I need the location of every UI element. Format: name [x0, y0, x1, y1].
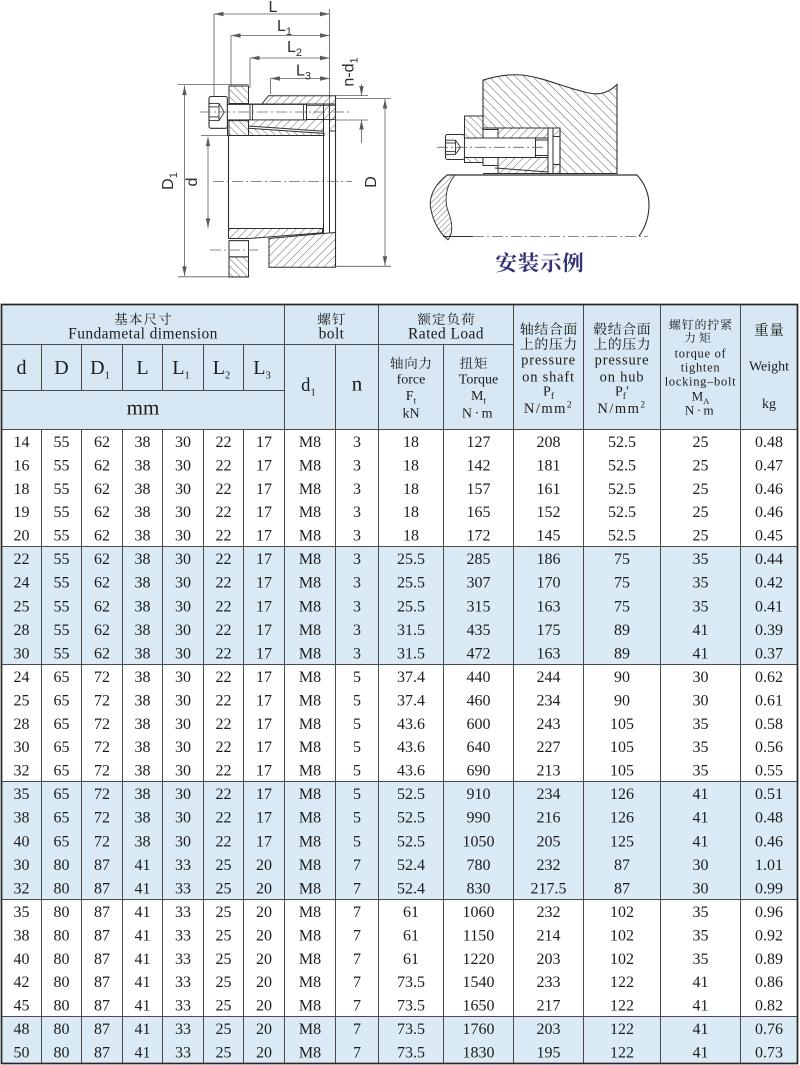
- svg-text:243: 243: [537, 716, 561, 733]
- svg-text:0.76: 0.76: [755, 1021, 783, 1038]
- svg-text:33: 33: [175, 927, 191, 944]
- svg-text:locking–bolt: locking–bolt: [665, 375, 737, 389]
- svg-text:0.92: 0.92: [755, 927, 783, 944]
- svg-text:55: 55: [54, 622, 70, 639]
- svg-text:22: 22: [216, 810, 232, 827]
- svg-text:172: 172: [467, 528, 491, 545]
- svg-text:0.48: 0.48: [755, 810, 783, 827]
- svg-text:38: 38: [135, 810, 151, 827]
- svg-text:0.96: 0.96: [755, 904, 783, 921]
- svg-text:214: 214: [537, 927, 561, 944]
- svg-text:41: 41: [693, 974, 709, 991]
- svg-text:37.4: 37.4: [397, 692, 425, 709]
- svg-text:7: 7: [353, 1021, 361, 1038]
- svg-text:80: 80: [54, 881, 70, 898]
- svg-text:22: 22: [14, 551, 30, 568]
- svg-text:3: 3: [353, 457, 361, 474]
- svg-text:40: 40: [14, 833, 30, 850]
- svg-text:90: 90: [614, 669, 630, 686]
- svg-text:435: 435: [467, 622, 491, 639]
- svg-text:30: 30: [693, 857, 709, 874]
- svg-text:30: 30: [693, 881, 709, 898]
- svg-text:3: 3: [353, 434, 361, 451]
- svg-text:234: 234: [537, 786, 561, 803]
- svg-text:35: 35: [693, 716, 709, 733]
- svg-text:830: 830: [467, 881, 491, 898]
- svg-text:pressure: pressure: [521, 353, 576, 369]
- svg-text:N/mm2: N/mm2: [597, 401, 646, 418]
- svg-text:80: 80: [54, 998, 70, 1015]
- svg-text:0.46: 0.46: [755, 833, 783, 850]
- svg-text:M8: M8: [299, 598, 321, 615]
- svg-text:41: 41: [693, 998, 709, 1015]
- svg-text:20: 20: [256, 1021, 272, 1038]
- svg-text:25: 25: [693, 457, 709, 474]
- svg-text:72: 72: [94, 669, 110, 686]
- svg-text:M8: M8: [299, 763, 321, 780]
- svg-text:3: 3: [353, 551, 361, 568]
- svg-text:43.6: 43.6: [397, 716, 425, 733]
- svg-text:33: 33: [175, 881, 191, 898]
- svg-text:1830: 1830: [463, 1045, 495, 1062]
- svg-text:87: 87: [94, 857, 110, 874]
- svg-text:5: 5: [353, 716, 361, 733]
- svg-text:M8: M8: [299, 857, 321, 874]
- svg-text:25: 25: [216, 857, 232, 874]
- svg-text:33: 33: [175, 1045, 191, 1062]
- svg-text:17: 17: [256, 504, 272, 521]
- svg-text:227: 227: [537, 739, 561, 756]
- svg-text:157: 157: [467, 481, 491, 498]
- svg-text:55: 55: [54, 575, 70, 592]
- svg-text:d: d: [184, 178, 201, 187]
- svg-text:0.55: 0.55: [755, 763, 783, 780]
- svg-text:0.45: 0.45: [755, 528, 783, 545]
- svg-text:41: 41: [693, 1045, 709, 1062]
- svg-text:30: 30: [175, 669, 191, 686]
- svg-text:22: 22: [216, 457, 232, 474]
- svg-text:3: 3: [353, 646, 361, 663]
- svg-text:18: 18: [403, 504, 419, 521]
- svg-text:3: 3: [353, 622, 361, 639]
- svg-text:72: 72: [94, 833, 110, 850]
- svg-text:244: 244: [537, 669, 561, 686]
- svg-text:38: 38: [135, 504, 151, 521]
- svg-text:52.5: 52.5: [397, 786, 425, 803]
- svg-text:M8: M8: [299, 998, 321, 1015]
- svg-text:127: 127: [467, 434, 491, 451]
- svg-text:41: 41: [693, 622, 709, 639]
- svg-text:17: 17: [256, 598, 272, 615]
- svg-text:87: 87: [94, 951, 110, 968]
- svg-text:472: 472: [467, 646, 491, 663]
- svg-text:33: 33: [175, 998, 191, 1015]
- svg-text:315: 315: [467, 598, 491, 615]
- svg-text:D: D: [54, 357, 68, 379]
- svg-text:19: 19: [14, 504, 30, 521]
- svg-text:30: 30: [14, 646, 30, 663]
- svg-text:175: 175: [537, 622, 561, 639]
- svg-text:0.56: 0.56: [755, 739, 783, 756]
- svg-text:41: 41: [135, 974, 151, 991]
- svg-text:75: 75: [614, 575, 630, 592]
- svg-text:43.6: 43.6: [397, 763, 425, 780]
- svg-text:73.5: 73.5: [397, 998, 425, 1015]
- svg-text:32: 32: [14, 881, 30, 898]
- svg-text:7: 7: [353, 998, 361, 1015]
- svg-text:n: n: [352, 372, 363, 396]
- svg-text:55: 55: [54, 504, 70, 521]
- svg-text:62: 62: [94, 575, 110, 592]
- svg-text:30: 30: [175, 763, 191, 780]
- svg-text:122: 122: [610, 998, 634, 1015]
- svg-text:M8: M8: [299, 974, 321, 991]
- svg-text:16: 16: [14, 457, 30, 474]
- svg-text:35: 35: [693, 951, 709, 968]
- svg-text:M8: M8: [299, 622, 321, 639]
- svg-text:48: 48: [14, 1021, 30, 1038]
- svg-text:22: 22: [216, 481, 232, 498]
- svg-text:52.5: 52.5: [608, 528, 636, 545]
- svg-text:20: 20: [256, 857, 272, 874]
- svg-text:52.5: 52.5: [397, 810, 425, 827]
- svg-text:M8: M8: [299, 669, 321, 686]
- svg-text:30: 30: [175, 786, 191, 803]
- svg-text:32: 32: [14, 763, 30, 780]
- svg-text:20: 20: [256, 881, 272, 898]
- svg-text:M8: M8: [299, 951, 321, 968]
- svg-text:640: 640: [467, 739, 491, 756]
- svg-text:22: 22: [216, 551, 232, 568]
- svg-text:75: 75: [614, 551, 630, 568]
- svg-text:5: 5: [353, 739, 361, 756]
- svg-text:142: 142: [467, 457, 491, 474]
- svg-text:17: 17: [256, 551, 272, 568]
- svg-text:37.4: 37.4: [397, 669, 425, 686]
- svg-text:62: 62: [94, 481, 110, 498]
- svg-text:33: 33: [175, 857, 191, 874]
- svg-text:20: 20: [256, 951, 272, 968]
- svg-text:55: 55: [54, 551, 70, 568]
- svg-text:38: 38: [135, 786, 151, 803]
- svg-text:105: 105: [610, 763, 634, 780]
- svg-text:213: 213: [537, 763, 561, 780]
- svg-text:L: L: [136, 357, 148, 379]
- svg-text:460: 460: [467, 692, 491, 709]
- svg-text:30: 30: [693, 669, 709, 686]
- svg-text:7: 7: [353, 974, 361, 991]
- svg-text:N·m: N·m: [685, 403, 716, 418]
- svg-text:72: 72: [94, 739, 110, 756]
- svg-text:25: 25: [693, 504, 709, 521]
- svg-text:17: 17: [256, 575, 272, 592]
- svg-text:38: 38: [135, 551, 151, 568]
- svg-text:0.47: 0.47: [755, 457, 783, 474]
- svg-text:35: 35: [693, 739, 709, 756]
- svg-text:41: 41: [135, 927, 151, 944]
- svg-text:55: 55: [54, 434, 70, 451]
- svg-text:38: 38: [135, 622, 151, 639]
- svg-text:105: 105: [610, 739, 634, 756]
- svg-text:65: 65: [54, 739, 70, 756]
- svg-text:M8: M8: [299, 481, 321, 498]
- svg-text:73.5: 73.5: [397, 1045, 425, 1062]
- svg-text:217.5: 217.5: [531, 881, 567, 898]
- svg-text:87: 87: [94, 927, 110, 944]
- svg-text:Torque: Torque: [459, 373, 498, 388]
- svg-text:5: 5: [353, 786, 361, 803]
- svg-text:22: 22: [216, 622, 232, 639]
- svg-text:7: 7: [353, 927, 361, 944]
- svg-text:61: 61: [403, 951, 419, 968]
- svg-text:87: 87: [94, 904, 110, 921]
- svg-text:30: 30: [175, 716, 191, 733]
- svg-text:170: 170: [537, 575, 561, 592]
- svg-text:M8: M8: [299, 881, 321, 898]
- svg-text:0.44: 0.44: [755, 551, 783, 568]
- svg-text:1150: 1150: [463, 927, 494, 944]
- svg-text:30: 30: [175, 833, 191, 850]
- svg-text:38: 38: [135, 457, 151, 474]
- svg-text:233: 233: [537, 974, 561, 991]
- svg-text:38: 38: [135, 716, 151, 733]
- svg-text:72: 72: [94, 716, 110, 733]
- svg-text:7: 7: [353, 881, 361, 898]
- svg-text:M8: M8: [299, 786, 321, 803]
- svg-text:0.99: 0.99: [755, 881, 783, 898]
- svg-text:M8: M8: [299, 739, 321, 756]
- svg-text:87: 87: [94, 881, 110, 898]
- svg-text:163: 163: [537, 598, 561, 615]
- svg-text:38: 38: [135, 669, 151, 686]
- svg-text:18: 18: [403, 528, 419, 545]
- svg-text:62: 62: [94, 622, 110, 639]
- svg-text:25: 25: [14, 598, 30, 615]
- svg-text:M8: M8: [299, 434, 321, 451]
- svg-text:41: 41: [135, 904, 151, 921]
- svg-text:38: 38: [14, 810, 30, 827]
- svg-text:22: 22: [216, 716, 232, 733]
- svg-text:62: 62: [94, 646, 110, 663]
- svg-text:18: 18: [403, 481, 419, 498]
- svg-text:M8: M8: [299, 904, 321, 921]
- svg-text:102: 102: [610, 904, 634, 921]
- svg-text:0.82: 0.82: [755, 998, 783, 1015]
- svg-text:17: 17: [256, 763, 272, 780]
- svg-text:25: 25: [693, 528, 709, 545]
- svg-text:17: 17: [256, 786, 272, 803]
- svg-text:30: 30: [175, 434, 191, 451]
- svg-text:pressure: pressure: [595, 353, 650, 369]
- svg-text:25: 25: [216, 1021, 232, 1038]
- svg-text:35: 35: [693, 904, 709, 921]
- svg-text:55: 55: [54, 646, 70, 663]
- svg-text:72: 72: [94, 692, 110, 709]
- svg-text:38: 38: [135, 692, 151, 709]
- svg-text:87: 87: [94, 974, 110, 991]
- svg-text:D: D: [363, 176, 380, 188]
- svg-text:M8: M8: [299, 528, 321, 545]
- svg-text:217: 217: [537, 998, 561, 1015]
- svg-text:M8: M8: [299, 646, 321, 663]
- svg-text:52.4: 52.4: [397, 881, 425, 898]
- svg-text:28: 28: [14, 622, 30, 639]
- svg-text:14: 14: [14, 434, 30, 451]
- svg-text:1050: 1050: [463, 833, 495, 850]
- svg-text:80: 80: [54, 904, 70, 921]
- svg-text:87: 87: [614, 881, 630, 898]
- svg-text:87: 87: [94, 1021, 110, 1038]
- svg-text:M8: M8: [299, 575, 321, 592]
- svg-text:3: 3: [353, 598, 361, 615]
- svg-text:990: 990: [467, 810, 491, 827]
- svg-text:M8: M8: [299, 927, 321, 944]
- svg-text:N/mm2: N/mm2: [524, 401, 573, 418]
- svg-text:25: 25: [216, 1045, 232, 1062]
- svg-text:55: 55: [54, 457, 70, 474]
- svg-text:24: 24: [14, 669, 30, 686]
- svg-text:20: 20: [14, 528, 30, 545]
- svg-text:65: 65: [54, 763, 70, 780]
- svg-text:20: 20: [256, 904, 272, 921]
- svg-text:22: 22: [216, 646, 232, 663]
- svg-text:20: 20: [256, 998, 272, 1015]
- svg-text:216: 216: [537, 810, 561, 827]
- svg-text:52.5: 52.5: [397, 833, 425, 850]
- svg-text:42: 42: [14, 974, 30, 991]
- svg-text:0.46: 0.46: [755, 481, 783, 498]
- svg-text:33: 33: [175, 951, 191, 968]
- svg-text:41: 41: [135, 998, 151, 1015]
- svg-text:kN: kN: [402, 407, 419, 422]
- svg-text:43.6: 43.6: [397, 739, 425, 756]
- svg-text:0.37: 0.37: [755, 646, 783, 663]
- svg-text:38: 38: [135, 763, 151, 780]
- svg-text:165: 165: [467, 504, 491, 521]
- svg-text:torque of: torque of: [675, 347, 727, 361]
- svg-text:1.01: 1.01: [755, 857, 783, 874]
- svg-text:L: L: [269, 0, 278, 16]
- svg-text:181: 181: [537, 457, 561, 474]
- svg-text:30: 30: [175, 692, 191, 709]
- svg-text:25: 25: [216, 904, 232, 921]
- svg-text:208: 208: [537, 434, 561, 451]
- svg-text:89: 89: [614, 622, 630, 639]
- svg-text:22: 22: [216, 528, 232, 545]
- svg-text:62: 62: [94, 504, 110, 521]
- svg-text:41: 41: [135, 951, 151, 968]
- svg-text:87: 87: [94, 1045, 110, 1062]
- svg-text:62: 62: [94, 598, 110, 615]
- svg-text:18: 18: [14, 481, 30, 498]
- svg-text:1060: 1060: [463, 904, 495, 921]
- svg-text:41: 41: [693, 810, 709, 827]
- svg-text:38: 38: [135, 598, 151, 615]
- svg-text:30: 30: [175, 575, 191, 592]
- svg-text:18: 18: [403, 457, 419, 474]
- svg-text:52.5: 52.5: [608, 504, 636, 521]
- svg-text:0.46: 0.46: [755, 504, 783, 521]
- svg-text:780: 780: [467, 857, 491, 874]
- svg-text:61: 61: [403, 904, 419, 921]
- svg-text:30: 30: [175, 598, 191, 615]
- svg-text:50: 50: [14, 1045, 30, 1062]
- svg-text:17: 17: [256, 810, 272, 827]
- svg-text:0.51: 0.51: [755, 786, 783, 803]
- svg-text:90: 90: [614, 692, 630, 709]
- svg-text:35: 35: [14, 786, 30, 803]
- svg-text:35: 35: [693, 575, 709, 592]
- svg-text:Pf′: Pf′: [615, 385, 629, 403]
- svg-text:3: 3: [353, 481, 361, 498]
- svg-text:55: 55: [54, 481, 70, 498]
- svg-text:35: 35: [693, 927, 709, 944]
- svg-text:22: 22: [216, 669, 232, 686]
- svg-text:25: 25: [216, 881, 232, 898]
- svg-text:0.73: 0.73: [755, 1045, 783, 1062]
- svg-text:38: 38: [14, 927, 30, 944]
- svg-text:38: 38: [135, 575, 151, 592]
- svg-text:0.48: 0.48: [755, 434, 783, 451]
- svg-text:30: 30: [175, 457, 191, 474]
- svg-text:22: 22: [216, 575, 232, 592]
- svg-text:22: 22: [216, 786, 232, 803]
- svg-text:55: 55: [54, 598, 70, 615]
- svg-text:17: 17: [256, 833, 272, 850]
- svg-text:102: 102: [610, 927, 634, 944]
- svg-text:234: 234: [537, 692, 561, 709]
- svg-text:73.5: 73.5: [397, 974, 425, 991]
- svg-text:25: 25: [216, 951, 232, 968]
- svg-text:17: 17: [256, 646, 272, 663]
- svg-text:30: 30: [175, 551, 191, 568]
- svg-text:87: 87: [614, 857, 630, 874]
- svg-text:M8: M8: [299, 457, 321, 474]
- svg-text:61: 61: [403, 927, 419, 944]
- svg-text:30: 30: [175, 528, 191, 545]
- svg-text:31.5: 31.5: [397, 622, 425, 639]
- svg-text:17: 17: [256, 622, 272, 639]
- svg-text:20: 20: [256, 1045, 272, 1062]
- svg-text:62: 62: [94, 551, 110, 568]
- svg-text:87: 87: [94, 998, 110, 1015]
- svg-text:22: 22: [216, 434, 232, 451]
- svg-text:31.5: 31.5: [397, 646, 425, 663]
- svg-text:80: 80: [54, 927, 70, 944]
- svg-text:38: 38: [135, 528, 151, 545]
- svg-text:145: 145: [537, 528, 561, 545]
- svg-text:33: 33: [175, 904, 191, 921]
- svg-text:25: 25: [216, 974, 232, 991]
- svg-text:195: 195: [537, 1045, 561, 1062]
- svg-text:52.5: 52.5: [608, 481, 636, 498]
- svg-text:65: 65: [54, 716, 70, 733]
- svg-text:d: d: [17, 357, 27, 379]
- svg-text:7: 7: [353, 951, 361, 968]
- svg-text:1540: 1540: [463, 974, 495, 991]
- svg-text:N·m: N·m: [462, 407, 495, 422]
- svg-text:3: 3: [353, 504, 361, 521]
- svg-text:72: 72: [94, 763, 110, 780]
- svg-text:M8: M8: [299, 810, 321, 827]
- svg-text:22: 22: [216, 598, 232, 615]
- svg-text:3: 3: [353, 575, 361, 592]
- svg-text:25.5: 25.5: [397, 551, 425, 568]
- svg-text:65: 65: [54, 833, 70, 850]
- svg-text:17: 17: [256, 739, 272, 756]
- svg-text:65: 65: [54, 692, 70, 709]
- svg-text:232: 232: [537, 904, 561, 921]
